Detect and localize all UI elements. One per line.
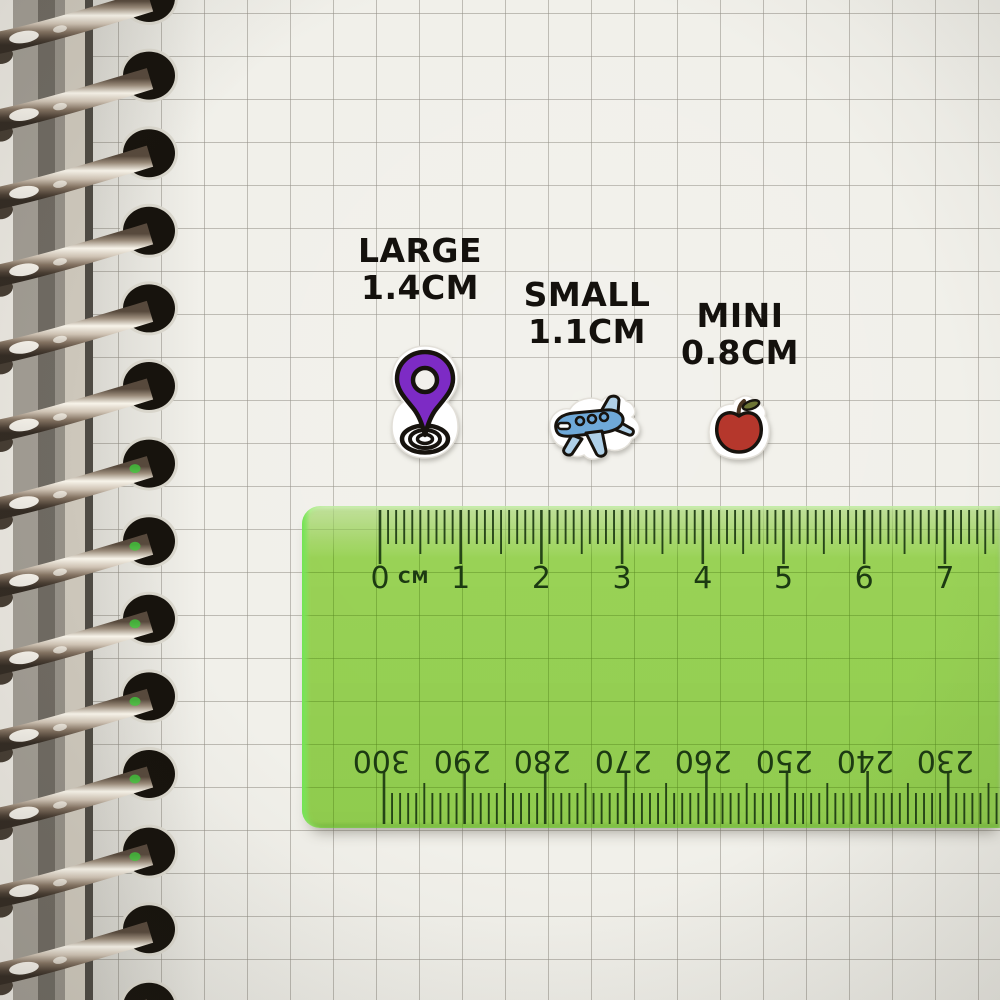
- ruler: 01234567 CM 300290280270260250240230: [302, 506, 1000, 828]
- ruler-top-number: 3: [600, 564, 644, 594]
- ruler-unit-label: CM: [398, 568, 429, 588]
- ruler-bottom-number: 230: [922, 745, 974, 775]
- ruler-bottom-number: 250: [761, 745, 813, 775]
- spiral-binding: [0, 0, 195, 1000]
- location-pin-sticker: [386, 344, 464, 464]
- label-name: MINI: [630, 297, 850, 334]
- ruler-bottom-number: 270: [600, 745, 652, 775]
- ruler-bottom-number: 260: [680, 745, 732, 775]
- ruler-top-number: 1: [439, 564, 483, 594]
- ruler-top-number: 6: [842, 564, 886, 594]
- ruler-bottom-number: 240: [842, 745, 894, 775]
- ruler-top-number: 4: [681, 564, 725, 594]
- apple-sticker: [707, 394, 771, 466]
- ruler-bottom-number: 290: [439, 745, 491, 775]
- size-label-mini: MINI 0.8CM: [630, 297, 850, 371]
- pin-hole: [413, 368, 437, 392]
- ruler-top-number: 5: [762, 564, 806, 594]
- ruler-top-number: 7: [923, 564, 967, 594]
- label-name: LARGE: [310, 232, 530, 269]
- ruler-bottom-number: 280: [519, 745, 571, 775]
- label-size: 0.8CM: [630, 334, 850, 371]
- ruler-tick-marks: [302, 506, 1000, 828]
- ruler-bottom-number: 300: [358, 745, 410, 775]
- ruler-top-number: 0: [358, 564, 402, 594]
- notebook-photo: LARGE 1.4CM SMALL 1.1CM MINI 0.8CM: [0, 0, 1000, 1000]
- ruler-top-number: 2: [519, 564, 563, 594]
- airplane-sticker: [542, 393, 654, 469]
